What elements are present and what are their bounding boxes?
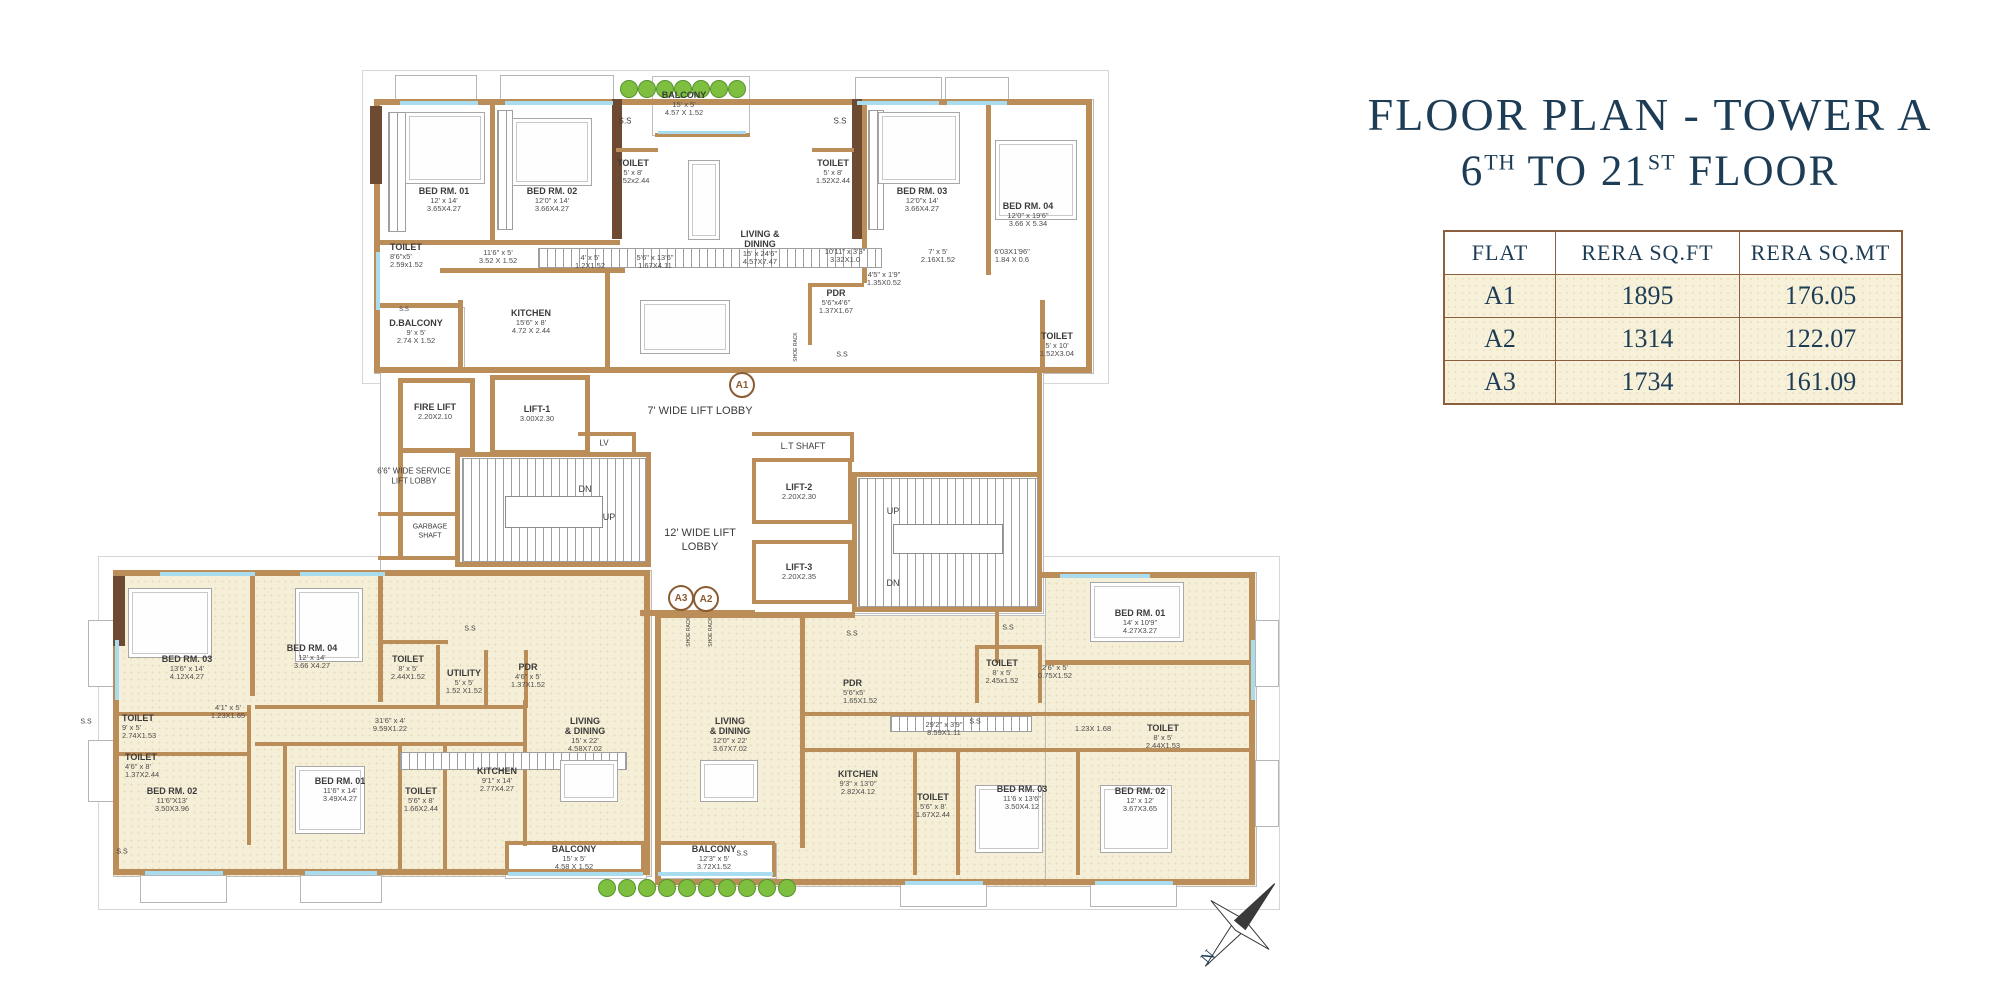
room-dimensions: 4.57 X 1.52 bbox=[662, 109, 707, 117]
room-label: D.BALCONY9' x 5'2.74 X 1.52 bbox=[389, 319, 443, 345]
wall bbox=[852, 607, 1042, 612]
room-label: TOILET9' x 5'2.74X1.53 bbox=[122, 714, 156, 740]
room-label: BED RM. 0311'6 x 13'6"3.50X4.12 bbox=[997, 785, 1048, 811]
plan-text: L.T SHAFT bbox=[781, 441, 826, 451]
title-line1: FLOOR PLAN - TOWER A bbox=[1360, 88, 1940, 141]
wall bbox=[378, 556, 460, 560]
room-dimensions: 3.67X3.65 bbox=[1115, 805, 1166, 813]
room-dimensions: 0.75X1.52 bbox=[1038, 672, 1072, 680]
room-dimensions: 3.66 X 5.34 bbox=[1003, 220, 1054, 228]
plan-text: S.S bbox=[399, 307, 409, 313]
room-dimensions: 3.66X4.27 bbox=[527, 205, 578, 213]
table-header-cell: RERA SQ.FT bbox=[1556, 231, 1740, 275]
window-line bbox=[115, 640, 119, 700]
dim-label: 4'1" x 5'1.23X1.65 bbox=[211, 704, 245, 721]
room-dimensions: 1.52X2.44 bbox=[816, 177, 850, 185]
hatch-strip bbox=[497, 110, 513, 230]
table-header-cell: FLAT bbox=[1444, 231, 1556, 275]
table-header-row: FLATRERA SQ.FTRERA SQ.MT bbox=[1444, 231, 1902, 275]
dim-label: 31'6" x 4'9.59X1.22 bbox=[373, 717, 407, 734]
room-dimensions: 1.2X1.52 bbox=[575, 262, 605, 270]
wall bbox=[852, 472, 857, 612]
plant-icon bbox=[638, 80, 656, 98]
wall bbox=[1249, 572, 1255, 885]
dim-label: 29'2" x 3'9"8.59X1.11 bbox=[926, 721, 963, 738]
plan-text: DN bbox=[887, 578, 900, 588]
room-dimensions: 1.35X0.52 bbox=[867, 279, 901, 287]
floor-plan: BED RM. 0112' x 14'3.65X4.27BED RM. 0212… bbox=[0, 0, 1340, 1000]
plan-text: UP bbox=[887, 506, 900, 516]
table-row: A21314122.07 bbox=[1444, 318, 1902, 361]
wall bbox=[986, 105, 991, 275]
dim-label: 5'6" x 13'6"1.67X4.11 bbox=[637, 254, 674, 271]
room-dimensions: 1.52 X1.52 bbox=[446, 687, 482, 695]
bay-window bbox=[300, 875, 382, 903]
page-title: FLOOR PLAN - TOWER A 6TH TO 21ST FLOOR bbox=[1360, 88, 1940, 196]
room-label: BED RM. 0412' x 14'3.66 X4.27 bbox=[287, 644, 338, 670]
window-line bbox=[300, 572, 385, 576]
plant-icon bbox=[638, 879, 656, 897]
wall bbox=[956, 748, 960, 875]
window-line bbox=[508, 872, 643, 876]
wall bbox=[380, 640, 448, 644]
room-dimensions: 1.66X2.44 bbox=[404, 805, 438, 813]
wall bbox=[380, 303, 462, 308]
plan-text: S.S bbox=[836, 352, 847, 359]
room-dimensions: 1.84 X 0.6 bbox=[994, 256, 1030, 264]
wall bbox=[812, 148, 854, 152]
plant-icon bbox=[658, 879, 676, 897]
room-label: BED RM. 0111'6" x 14'3.49X4.27 bbox=[315, 777, 366, 803]
room-label: TOILET8' x 5'2.45x1.52 bbox=[986, 659, 1019, 685]
room-dimensions: 8.59X1.11 bbox=[926, 729, 963, 737]
plan-text: 7' WIDE LIFT LOBBY bbox=[647, 405, 752, 417]
room-dimensions: 3.72X1.52 bbox=[692, 863, 737, 871]
furniture bbox=[405, 112, 485, 184]
wall bbox=[752, 432, 854, 436]
wall bbox=[398, 378, 474, 383]
room-label: KITCHEN15'6" x 8'4.72 X 2.44 bbox=[511, 309, 551, 335]
room-dimensions: 4.57X7.47 bbox=[740, 258, 779, 266]
dim-label: 11'6" x 5'3.52 X 1.52 bbox=[479, 249, 517, 266]
compass-north-label: N bbox=[1197, 946, 1219, 968]
plant-icon bbox=[758, 879, 776, 897]
rera-area-table: FLATRERA SQ.FTRERA SQ.MT A11895176.05A21… bbox=[1443, 230, 1903, 405]
wall bbox=[752, 462, 756, 524]
plant-icon bbox=[738, 879, 756, 897]
window-line bbox=[1095, 881, 1173, 885]
window-line bbox=[400, 101, 478, 105]
plant-icon bbox=[778, 879, 796, 897]
plan-text: 6'6" WIDE SERVICE bbox=[377, 467, 451, 476]
window-line bbox=[905, 881, 983, 885]
plant-icon bbox=[678, 879, 696, 897]
room-dimensions: 4.27X3.27 bbox=[1115, 627, 1166, 635]
wall bbox=[436, 645, 440, 707]
room-dimensions: 1.37X2.44 bbox=[125, 771, 159, 779]
room-label: TOILET5'6" x 8'1.66X2.44 bbox=[404, 787, 438, 813]
plan-text: SHOE RACK bbox=[686, 617, 692, 646]
plan-text: SHOE RACK bbox=[793, 332, 799, 361]
sqmt-cell: 161.09 bbox=[1740, 361, 1903, 405]
plan-text: S.S bbox=[969, 719, 980, 726]
room-dimensions: 1.65X1.52 bbox=[843, 697, 877, 705]
room-dimensions: 2.77X4.27 bbox=[477, 785, 517, 793]
plan-text: S.S bbox=[1002, 625, 1013, 632]
floor-plan-sheet: BED RM. 0112' x 14'3.65X4.27BED RM. 0212… bbox=[0, 0, 2000, 1000]
furniture bbox=[128, 588, 212, 658]
plan-text: S.S bbox=[464, 626, 475, 633]
room-label: BED RM. 0211'6"X13'3.50X3.96 bbox=[147, 787, 198, 813]
room-label: TOILET5' x 10'1.52X3.04 bbox=[1040, 332, 1074, 358]
stair-landing bbox=[893, 524, 1003, 554]
room-label: TOILET8'6"x5'2.59x1.52 bbox=[390, 243, 423, 269]
room-dimensions: 3.49X4.27 bbox=[315, 795, 366, 803]
room-label: TOILET8' x 5'2.44X1.53 bbox=[1146, 724, 1180, 750]
room-label: PDR5'6"x4'6"1.37X1.67 bbox=[819, 289, 853, 315]
furniture bbox=[560, 760, 618, 802]
wall bbox=[283, 746, 287, 869]
room-dimensions: 4.12X4.27 bbox=[162, 673, 213, 681]
window-line bbox=[658, 131, 746, 134]
wall bbox=[752, 540, 852, 544]
room-label: LIFT-22.20X2.30 bbox=[782, 483, 816, 501]
room-dimensions: 2.44X1.53 bbox=[1146, 742, 1180, 750]
flat-cell: A1 bbox=[1444, 275, 1556, 318]
hatch-strip bbox=[388, 112, 406, 232]
room-label: TOILET4'6" x 8'1.37X2.44 bbox=[125, 753, 159, 779]
title-line2-part: TO 21 bbox=[1516, 148, 1648, 195]
furniture bbox=[640, 300, 730, 354]
room-dimensions: 3.50X4.12 bbox=[997, 803, 1048, 811]
room-label: PDR5'6"x5'1.65X1.52 bbox=[843, 679, 877, 705]
room-dimensions: 3.50X3.96 bbox=[147, 805, 198, 813]
wall bbox=[852, 472, 1042, 477]
room-label: BED RM. 0212' x 12'3.67X3.65 bbox=[1115, 787, 1166, 813]
wall bbox=[505, 843, 509, 875]
wall bbox=[455, 452, 651, 457]
plan-text: DN bbox=[579, 484, 592, 494]
sqft-cell: 1734 bbox=[1556, 361, 1740, 405]
wall bbox=[378, 512, 460, 516]
room-dimensions: 2.44X1.52 bbox=[391, 673, 425, 681]
wall bbox=[641, 843, 645, 875]
room-dimensions: 4.72 X 2.44 bbox=[511, 327, 551, 335]
room-dimensions: 3.67X7.02 bbox=[710, 745, 751, 753]
wall bbox=[247, 705, 251, 845]
bay-window bbox=[1090, 883, 1177, 907]
wall bbox=[605, 268, 610, 367]
wall bbox=[1086, 99, 1092, 373]
room-label: LIVING& DINING15' x 22'4.58X7.02 bbox=[565, 717, 606, 753]
furniture bbox=[512, 118, 592, 186]
plant-icon bbox=[620, 80, 638, 98]
window-line bbox=[1251, 640, 1255, 700]
window-line bbox=[1060, 574, 1150, 578]
sqft-cell: 1314 bbox=[1556, 318, 1740, 361]
room-label: BALCONY15' x 5'4.57 X 1.52 bbox=[662, 91, 707, 117]
plant-icon bbox=[718, 879, 736, 897]
sqmt-cell: 176.05 bbox=[1740, 275, 1903, 318]
wall bbox=[1076, 748, 1080, 875]
furniture bbox=[878, 112, 960, 184]
wall bbox=[850, 432, 854, 462]
room-label: BED RM. 0112' x 14'3.65X4.27 bbox=[419, 187, 470, 213]
wall bbox=[255, 705, 523, 709]
wall bbox=[458, 300, 463, 367]
plant-icon bbox=[598, 879, 616, 897]
wall bbox=[808, 283, 812, 345]
wall bbox=[255, 742, 523, 746]
dim-label: 1.23X 1.68 bbox=[1075, 725, 1111, 733]
table-header-cell: RERA SQ.MT bbox=[1740, 231, 1903, 275]
room-label: PDR4'6" x 5'1.37X1.52 bbox=[511, 663, 545, 689]
room-dimensions: 2.82X4.12 bbox=[838, 788, 878, 796]
wall bbox=[808, 283, 864, 287]
wall bbox=[1045, 660, 1250, 665]
wall bbox=[616, 148, 658, 152]
stair-landing bbox=[505, 496, 603, 528]
plan-text: S.S bbox=[834, 117, 847, 126]
room-dimensions: 2.20X2.30 bbox=[782, 493, 816, 501]
room-label: BED RM. 0312'0"x 14'3.66X4.27 bbox=[897, 187, 948, 213]
plant-icon bbox=[728, 80, 746, 98]
furniture bbox=[688, 160, 720, 240]
wall bbox=[374, 367, 1092, 373]
dim-label: 7' x 5'2.16X1.52 bbox=[921, 248, 955, 265]
room-label: TOILET5'6" x 8'1.67X2.44 bbox=[916, 793, 950, 819]
dim-label: 4' x 5'1.2X1.52 bbox=[575, 254, 605, 271]
room-dimensions: 9.59X1.22 bbox=[373, 725, 407, 733]
room-label: BED RM. 0212'0" x 14'3.66X4.27 bbox=[527, 187, 578, 213]
plan-text: S.S bbox=[736, 851, 747, 858]
room-dimensions: 3.00X2.30 bbox=[520, 415, 554, 423]
dim-label: 6'03X1'96"1.84 X 0.6 bbox=[994, 248, 1030, 265]
wall bbox=[378, 576, 383, 702]
plan-text: S.S bbox=[846, 631, 857, 638]
compass-icon: N bbox=[1180, 865, 1300, 985]
plan-text: S.S bbox=[80, 719, 91, 726]
plan-text: LIFT LOBBY bbox=[391, 477, 436, 486]
plan-text: LOBBY bbox=[682, 541, 719, 553]
furniture bbox=[700, 760, 758, 802]
unit-marker-a2: A2 bbox=[693, 586, 719, 612]
dim-label: 2'6" x 5'0.75X1.52 bbox=[1038, 664, 1072, 681]
plan-text: 12' WIDE LIFT bbox=[664, 527, 736, 539]
window-line bbox=[305, 871, 377, 875]
wall bbox=[752, 520, 852, 524]
sqft-cell: 1895 bbox=[1556, 275, 1740, 318]
room-label: TOILET8' x 5'2.44X1.52 bbox=[391, 655, 425, 681]
wall bbox=[975, 645, 979, 703]
wall bbox=[585, 375, 590, 455]
room-label: LIFT-32.20X2.35 bbox=[782, 563, 816, 581]
wall bbox=[578, 432, 636, 436]
room-dimensions: 1.23X 1.68 bbox=[1075, 725, 1111, 733]
wall bbox=[523, 700, 527, 846]
room-dimensions: 3.66 X4.27 bbox=[287, 662, 338, 670]
wall-dark bbox=[370, 106, 382, 184]
bay-window bbox=[900, 883, 987, 907]
sqmt-cell: 122.07 bbox=[1740, 318, 1903, 361]
room-dimensions: 2.20X2.35 bbox=[782, 573, 816, 581]
flat-cell: A2 bbox=[1444, 318, 1556, 361]
wall bbox=[655, 612, 855, 618]
room-dimensions: 3.32X1.0 bbox=[825, 256, 866, 264]
wall bbox=[752, 600, 852, 604]
plant-icon bbox=[710, 80, 728, 98]
room-dimensions: 1.23X1.65 bbox=[211, 712, 245, 720]
wall bbox=[975, 645, 1041, 649]
window-line bbox=[658, 872, 773, 876]
flat-cell: A3 bbox=[1444, 361, 1556, 405]
room-label: BALCONY15' x 5'4.58 X 1.52 bbox=[552, 845, 597, 871]
dim-label: 4'5" x 1'9"1.35X0.52 bbox=[867, 271, 901, 288]
room-dimensions: 2.59x1.52 bbox=[390, 261, 423, 269]
wall bbox=[644, 570, 650, 875]
room-label: TOILET5' x 8'1.52X2.44 bbox=[816, 159, 850, 185]
wall bbox=[800, 748, 1253, 752]
room-label: LIVING &DINING15' x 24'6"4.57X7.47 bbox=[740, 230, 779, 266]
wall bbox=[646, 452, 651, 567]
wall bbox=[490, 375, 590, 380]
room-dimensions: 1.37X1.52 bbox=[511, 681, 545, 689]
room-dimensions: 3.65X4.27 bbox=[419, 205, 470, 213]
room-dimensions: 4.58 X 1.52 bbox=[552, 863, 597, 871]
bay-window bbox=[1255, 760, 1279, 827]
wall bbox=[455, 452, 460, 567]
title-line2-part: TH bbox=[1484, 150, 1515, 175]
plan-text: LV bbox=[599, 439, 608, 448]
plan-text: SHOE RACK bbox=[708, 617, 714, 646]
table-row: A31734161.09 bbox=[1444, 361, 1902, 405]
room-label: KITCHEN9'3" x 13'0"2.82X4.12 bbox=[838, 770, 878, 796]
window-line bbox=[376, 252, 380, 310]
room-label: LIVING& DINING12'0" x 22'3.67X7.02 bbox=[710, 717, 751, 753]
room-dimensions: 1.52X3.04 bbox=[1040, 350, 1074, 358]
window-line bbox=[505, 101, 613, 105]
plan-text: GARBAGE bbox=[413, 524, 448, 531]
wall bbox=[490, 375, 495, 455]
wall bbox=[484, 650, 488, 708]
window-line bbox=[145, 871, 223, 875]
title-line2-part: FLOOR bbox=[1676, 148, 1840, 195]
room-label: LIFT-13.00X2.30 bbox=[520, 405, 554, 423]
plan-text: UP bbox=[603, 512, 616, 522]
plan-text: S.S bbox=[116, 849, 127, 856]
wall bbox=[250, 576, 255, 696]
title-line2-part: 6 bbox=[1461, 148, 1485, 195]
room-label: BED RM. 0313'6" x 14'4.12X4.27 bbox=[162, 655, 213, 681]
room-dimensions: 3.66X4.27 bbox=[897, 205, 948, 213]
wall bbox=[800, 615, 805, 848]
room-dimensions: 1.67X2.44 bbox=[916, 811, 950, 819]
room-label: FIRE LIFT2.20X2.10 bbox=[414, 403, 456, 421]
room-dimensions: 1.67X4.11 bbox=[637, 262, 674, 270]
room-label: BED RM. 0412'0" x 19'6"3.66 X 5.34 bbox=[1003, 202, 1054, 228]
plant-icon bbox=[698, 879, 716, 897]
wall-dark bbox=[113, 576, 125, 646]
wall bbox=[1037, 372, 1042, 477]
room-label: BED RM. 0114' x 10'9"4.27X3.27 bbox=[1115, 609, 1166, 635]
plan-text: SHAFT bbox=[419, 533, 442, 540]
bay-window bbox=[1255, 620, 1279, 687]
room-dimensions: 1.37X1.67 bbox=[819, 307, 853, 315]
plan-text: S.S bbox=[619, 117, 632, 126]
unit-marker-a3: A3 bbox=[668, 585, 694, 611]
title-line2-part: ST bbox=[1648, 150, 1676, 175]
bay-window bbox=[88, 620, 115, 687]
plant-icon bbox=[618, 879, 636, 897]
wall bbox=[490, 105, 495, 243]
wall bbox=[752, 540, 756, 604]
room-dimensions: 1.52x2.44 bbox=[617, 177, 650, 185]
room-dimensions: 2.16X1.52 bbox=[921, 256, 955, 264]
room-dimensions: 2.45x1.52 bbox=[986, 677, 1019, 685]
room-label: KITCHEN9'1" x 14'2.77X4.27 bbox=[477, 767, 517, 793]
bay-window bbox=[88, 740, 115, 802]
window-line bbox=[160, 572, 255, 576]
room-dimensions: 2.20X2.10 bbox=[414, 413, 456, 421]
wall-dark bbox=[852, 99, 862, 239]
window-line bbox=[947, 101, 1007, 105]
room-dimensions: 2.74X1.53 bbox=[122, 732, 156, 740]
wall bbox=[470, 378, 475, 452]
room-label: UTILITY5' x 5'1.52 X1.52 bbox=[446, 669, 482, 695]
unit-marker-a1: A1 bbox=[729, 372, 755, 398]
wall bbox=[455, 562, 651, 567]
room-dimensions: 2.74 X 1.52 bbox=[389, 337, 443, 345]
dim-label: 10'11" x 3'3"3.32X1.0 bbox=[825, 248, 866, 265]
room-label: TOILET5' x 8'1.52x2.44 bbox=[617, 159, 650, 185]
window-line bbox=[857, 101, 939, 105]
room-dimensions: 3.52 X 1.52 bbox=[479, 257, 517, 265]
title-line2: 6TH TO 21ST FLOOR bbox=[1360, 147, 1940, 196]
table-row: A11895176.05 bbox=[1444, 275, 1902, 318]
wall bbox=[752, 458, 854, 462]
bay-window bbox=[140, 875, 227, 903]
room-label: BALCONY12'3" x 5'3.72X1.52 bbox=[692, 845, 737, 871]
room-dimensions: 4.58X7.02 bbox=[565, 745, 606, 753]
